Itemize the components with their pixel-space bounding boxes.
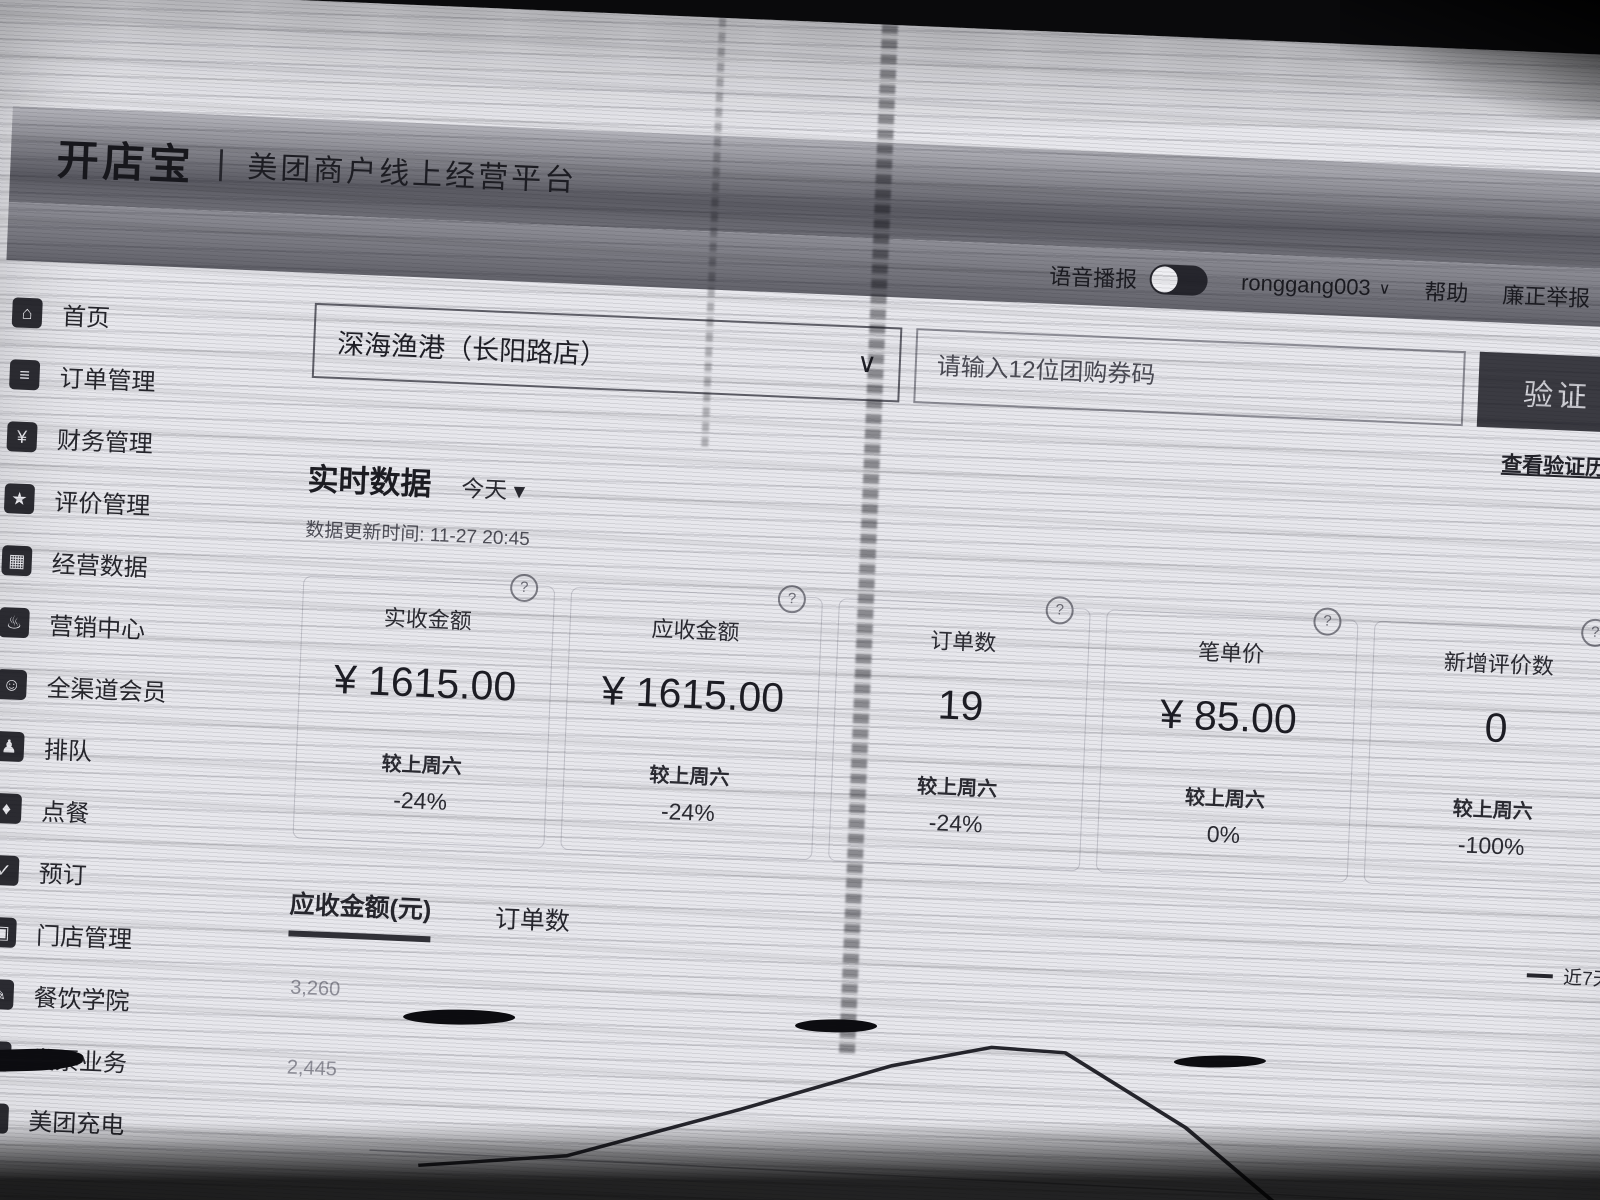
- store-management-icon: ▣: [0, 916, 17, 947]
- charging-icon: ↯: [0, 1102, 9, 1133]
- members-icon: ☺: [0, 668, 27, 699]
- compare-value: 0%: [1106, 817, 1341, 854]
- reservation-icon: ✓: [0, 854, 20, 885]
- compare-value: -24%: [838, 805, 1073, 842]
- help-link[interactable]: 帮助: [1424, 274, 1469, 308]
- home-icon: ⌂: [12, 297, 43, 328]
- sidebar-item-label: 发票业务: [30, 1040, 127, 1079]
- sidebar-item-finance[interactable]: ¥ 财务管理: [6, 418, 275, 464]
- tab-order-count[interactable]: 订单数: [494, 899, 571, 948]
- sidebar-item-label: 全渠道会员: [46, 668, 167, 708]
- compare-label: 较上周六: [304, 744, 539, 783]
- logo-divider: |: [216, 143, 226, 182]
- metric-card-new-reviews: ? 新增评价数 0 较上周六 -100%: [1364, 621, 1600, 894]
- dine-order-icon: ♦: [0, 792, 22, 823]
- metric-value: ¥ 1615.00: [307, 655, 543, 712]
- marketing-icon: ♨: [0, 607, 30, 638]
- voice-broadcast-label: 语音播报: [1049, 259, 1138, 295]
- photo-frame: 开店宝 | 美团商户线上经营平台 语音播报 ronggang003 ∨ 帮助 廉…: [0, 0, 1600, 1200]
- coupon-code-input[interactable]: [913, 328, 1466, 426]
- metric-card-receivable: ? 应收金额 ¥ 1615.00 较上周六 -24%: [560, 587, 823, 860]
- chevron-down-icon: ∨: [1378, 278, 1391, 298]
- sidebar-item-queue[interactable]: ♟ 排队: [0, 728, 263, 774]
- finance-icon: ¥: [6, 421, 37, 452]
- y-axis-tick: 2,445: [286, 1056, 337, 1081]
- app-window: 开店宝 | 美团商户线上经营平台 语音播报 ronggang003 ∨ 帮助 廉…: [0, 106, 1600, 1200]
- verify-button[interactable]: 验证: [1477, 352, 1600, 434]
- help-icon[interactable]: ?: [777, 585, 806, 614]
- legend-label: 近7天: [1563, 963, 1600, 992]
- compare-value: -24%: [303, 783, 538, 820]
- sidebar-item-label: 门店管理: [36, 916, 133, 955]
- sidebar-nav: ⌂ 首页 ≡ 订单管理 ¥ 财务管理 ★ 评价管理: [0, 260, 282, 1174]
- sidebar-item-label: 经营数据: [51, 544, 148, 583]
- metric-cards: ? 实收金额 ¥ 1615.00 较上周六 -24% ? 应收金额 ¥ 1615…: [292, 576, 1600, 894]
- sidebar-item-reservation[interactable]: ✓ 预订: [0, 852, 257, 898]
- sidebar-item-invoice[interactable]: ✉ 发票业务: [0, 1038, 250, 1084]
- sidebar-item-label: 财务管理: [56, 420, 153, 459]
- metric-card-actual-revenue: ? 实收金额 ¥ 1615.00 较上周六 -24%: [292, 576, 555, 849]
- metric-label: 应收金额: [578, 608, 813, 650]
- trend-chart-section: 应收金额(元) 订单数 近7天 3,260 2,445: [278, 884, 1600, 1200]
- sidebar-item-label: 排队: [43, 730, 92, 767]
- orders-icon: ≡: [9, 359, 40, 390]
- sidebar-item-dine-order[interactable]: ♦ 点餐: [0, 790, 260, 836]
- sidebar-item-label: 预订: [38, 854, 87, 891]
- metric-label: 实收金额: [310, 597, 545, 639]
- sidebar-item-label: 点餐: [41, 792, 90, 829]
- sidebar-item-label: 评价管理: [54, 482, 151, 521]
- main-body: ⌂ 首页 ≡ 订单管理 ¥ 财务管理 ★ 评价管理: [0, 260, 1600, 1200]
- user-menu[interactable]: ronggang003 ∨: [1241, 270, 1391, 302]
- metric-label: 订单数: [846, 619, 1081, 661]
- metric-card-order-count: ? 订单数 19 较上周六 -24%: [828, 598, 1091, 871]
- help-icon[interactable]: ?: [510, 573, 539, 602]
- y-axis-tick: 3,260: [290, 977, 341, 1002]
- chart-plot-area: 3,260 2,445: [278, 950, 1600, 1200]
- integrity-report-link[interactable]: 廉正举报: [1502, 278, 1591, 314]
- sidebar-item-marketing[interactable]: ♨ 营销中心: [0, 604, 268, 650]
- metric-value: 19: [843, 677, 1079, 734]
- sidebar-item-business-data[interactable]: ▦ 经营数据: [1, 542, 270, 588]
- compare-value: -24%: [570, 794, 805, 831]
- help-icon[interactable]: ?: [1313, 607, 1342, 636]
- sidebar-item-orders[interactable]: ≡ 订单管理: [9, 356, 278, 402]
- verification-history-link[interactable]: 查看验证历史: [1501, 453, 1600, 481]
- sidebar-item-label: 美团充电: [28, 1102, 125, 1141]
- username: ronggang003: [1241, 270, 1372, 301]
- business-data-icon: ▦: [1, 545, 32, 576]
- sidebar-item-charging[interactable]: ↯ 美团充电: [0, 1100, 247, 1146]
- compare-label: 较上周六: [572, 755, 807, 794]
- date-range-dropdown[interactable]: 今天 ▾: [461, 469, 526, 506]
- sidebar-item-label: 营销中心: [49, 606, 146, 645]
- sidebar-item-academy[interactable]: ✎ 餐饮学院: [0, 976, 252, 1022]
- compare-label: 较上周六: [840, 766, 1075, 805]
- line-legend-icon: [1527, 973, 1553, 978]
- tab-receivable-amount[interactable]: 应收金额(元): [288, 884, 432, 942]
- voice-toggle[interactable]: [1149, 264, 1208, 296]
- sidebar-item-label: 首页: [61, 296, 110, 333]
- metric-value: 0: [1378, 700, 1600, 757]
- sidebar-item-members[interactable]: ☺ 全渠道会员: [0, 666, 265, 712]
- trend-chart-svg: [368, 954, 1600, 1200]
- chevron-down-icon: ∨: [856, 348, 877, 380]
- store-selector[interactable]: 深海渔港（长阳路店） ∨: [312, 303, 903, 403]
- metric-card-avg-order-price: ? 笔单价 ¥ 85.00 较上周六 0%: [1096, 609, 1359, 882]
- metric-label: 新增评价数: [1381, 642, 1600, 684]
- sidebar-item-store-management[interactable]: ▣ 门店管理: [0, 914, 255, 960]
- metric-value: ¥ 85.00: [1110, 689, 1346, 746]
- help-icon[interactable]: ?: [1581, 618, 1600, 647]
- chart-legend: 近7天: [1527, 961, 1600, 992]
- sidebar-item-label: 订单管理: [59, 358, 156, 397]
- realtime-title: 实时数据: [307, 454, 433, 504]
- compare-label: 较上周六: [1108, 778, 1343, 817]
- sidebar-item-label: 餐饮学院: [33, 978, 130, 1017]
- metric-value: ¥ 1615.00: [575, 666, 811, 723]
- academy-icon: ✎: [0, 978, 14, 1009]
- voice-broadcast-control: 语音播报: [1049, 259, 1208, 298]
- content-area: 深海渔港（长阳路店） ∨ 验证 查看验证历史 实时数据 今天 ▾ 数据更新时间:…: [244, 272, 1600, 1200]
- platform-title: 美团商户线上经营平台: [247, 142, 579, 200]
- store-name: 深海渔港（长阳路店）: [336, 322, 607, 372]
- toggle-knob-icon: [1151, 266, 1178, 293]
- queue-icon: ♟: [0, 730, 25, 761]
- sidebar-item-home[interactable]: ⌂ 首页: [12, 294, 281, 340]
- sidebar-item-reviews[interactable]: ★ 评价管理: [4, 480, 273, 526]
- compare-value: -100%: [1374, 828, 1600, 865]
- app-logo: 开店宝: [56, 126, 196, 193]
- help-icon[interactable]: ?: [1045, 596, 1074, 625]
- invoice-icon: ✉: [0, 1040, 12, 1071]
- compare-label: 较上周六: [1375, 789, 1600, 828]
- reviews-icon: ★: [4, 483, 35, 514]
- metric-label: 笔单价: [1114, 631, 1349, 673]
- paper-sheet: 开店宝 | 美团商户线上经营平台 语音播报 ronggang003 ∨ 帮助 廉…: [0, 0, 1600, 1200]
